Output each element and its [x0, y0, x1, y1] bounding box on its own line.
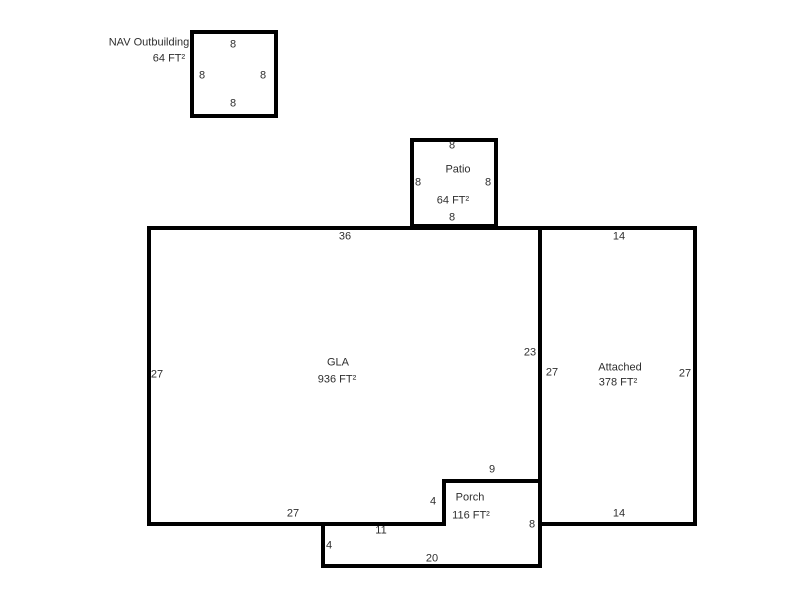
- floorplan-walls: [0, 0, 800, 600]
- outbuilding-name: NAV Outbuilding: [109, 37, 190, 50]
- attached-name: Attached: [598, 362, 641, 375]
- porch-dim-bottom: 20: [426, 553, 438, 566]
- porch-dim-inner-top: 11: [375, 525, 386, 538]
- porch-area: 116 FT²: [452, 510, 490, 523]
- floorplan-sketch: NAV Outbuilding 64 FT² 8 8 8 8 8 Patio 8…: [0, 0, 800, 600]
- porch-dim-upper-left: 4: [430, 496, 436, 509]
- gla-name: GLA: [327, 357, 349, 370]
- attached-dim-left: 27: [546, 367, 558, 380]
- patio-dim-top: 8: [449, 140, 455, 153]
- attached-area: 378 FT²: [599, 377, 638, 390]
- porch-dim-right: 8: [529, 519, 535, 532]
- outbuilding-dim-bottom: 8: [230, 98, 236, 111]
- attached-dim-bottom: 14: [613, 508, 625, 521]
- outbuilding-dim-right: 8: [260, 70, 266, 83]
- patio-dim-left: 8: [415, 177, 421, 190]
- attached-dim-top: 14: [613, 231, 625, 244]
- porch-name: Porch: [456, 492, 485, 505]
- patio-dim-right: 8: [485, 177, 491, 190]
- attached-dim-right: 27: [679, 368, 691, 381]
- patio-area: 64 FT²: [437, 195, 469, 208]
- porch-dim-lower-left: 4: [326, 540, 332, 553]
- gla-area: 936 FT²: [318, 374, 357, 387]
- patio-dim-bottom: 8: [449, 212, 455, 225]
- gla-dim-top: 36: [339, 231, 351, 244]
- outbuilding-dim-top: 8: [230, 39, 236, 52]
- gla-dim-bottom: 27: [287, 508, 299, 521]
- gla-dim-left: 27: [151, 369, 163, 382]
- outbuilding-area: 64 FT²: [153, 53, 185, 66]
- porch-dim-top: 9: [489, 464, 495, 477]
- gla-dim-right: 23: [524, 347, 536, 360]
- outbuilding-dim-left: 8: [199, 70, 205, 83]
- patio-name: Patio: [445, 164, 470, 177]
